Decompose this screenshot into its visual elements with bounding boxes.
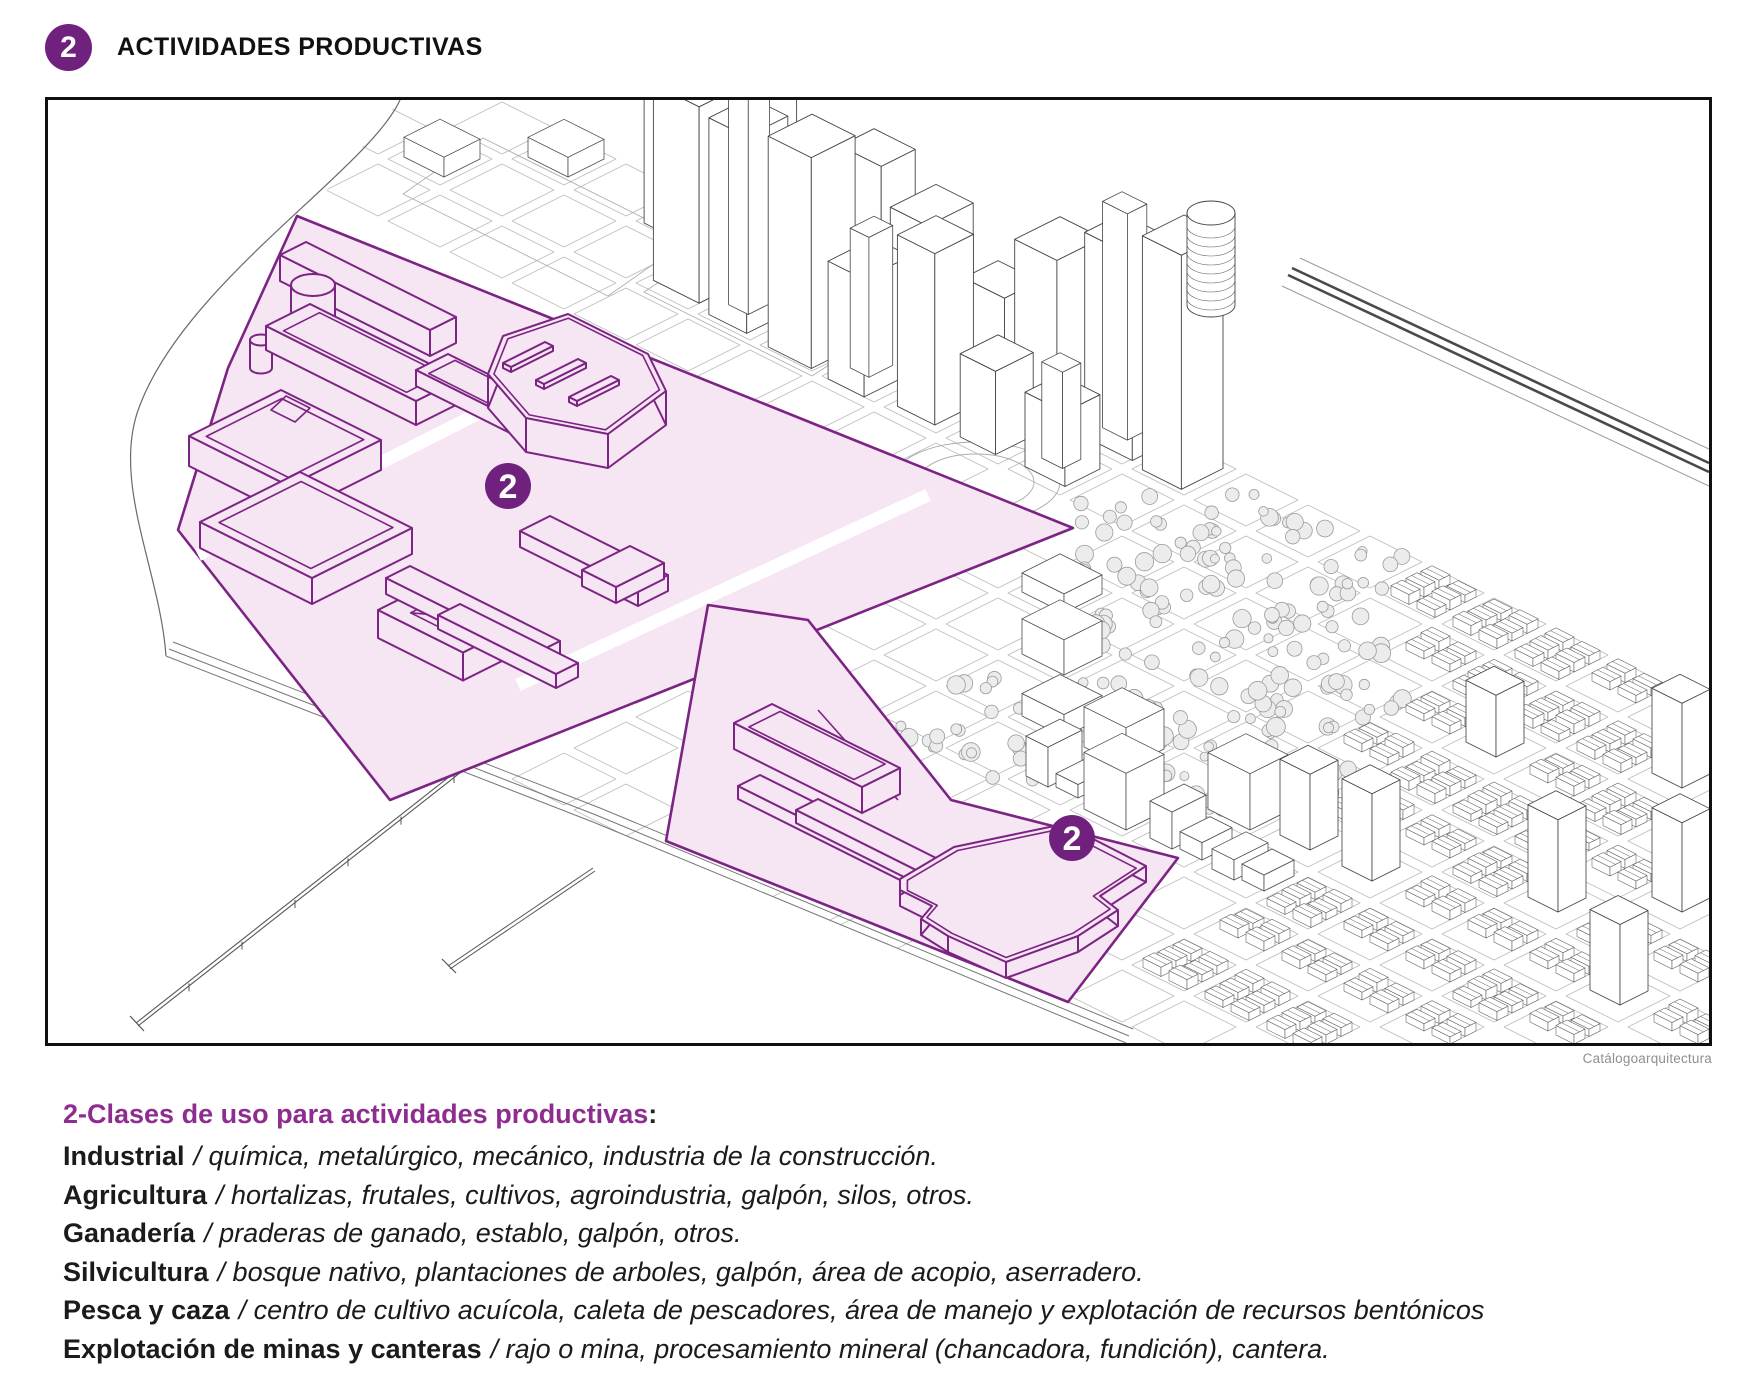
legend-term: Silvicultura	[63, 1257, 209, 1287]
legend-item-ganaderia: Ganadería/ praderas de ganado, establo, …	[63, 1214, 1703, 1253]
section-header: 2 ACTIVIDADES PRODUCTIVAS	[45, 24, 483, 71]
legend-desc: / bosque nativo, plantaciones de arboles…	[218, 1257, 1144, 1287]
legend-item-minas: Explotación de minas y canteras/ rajo o …	[63, 1330, 1703, 1369]
legend-term: Explotación de minas y canteras	[63, 1334, 482, 1364]
legend-desc: / química, metalúrgico, mecánico, indust…	[194, 1141, 938, 1171]
legend-desc: / praderas de ganado, establo, galpón, o…	[204, 1218, 741, 1248]
legend-desc: / hortalizas, frutales, cultivos, agroin…	[216, 1180, 974, 1210]
legend-item-silvicultura: Silvicultura/ bosque nativo, plantacione…	[63, 1253, 1703, 1292]
section-number: 2	[60, 31, 77, 65]
legend-heading-colon: :	[648, 1099, 657, 1129]
city-map-figure: 22	[45, 97, 1712, 1046]
isometric-city-drawing: 22	[48, 100, 1709, 1043]
legend-heading-text: 2-Clases de uso para actividades product…	[63, 1099, 648, 1129]
legend-term: Agricultura	[63, 1180, 207, 1210]
legend-item-pesca: Pesca y caza/ centro de cultivo acuícola…	[63, 1291, 1703, 1330]
legend-desc: / rajo o mina, procesamiento mineral (ch…	[491, 1334, 1330, 1364]
legend-item-industrial: Industrial/ química, metalúrgico, mecáni…	[63, 1137, 1703, 1176]
section-number-badge: 2	[45, 24, 92, 71]
map-credit: Catálogoarquitectura	[45, 1051, 1712, 1066]
legend-term: Pesca y caza	[63, 1295, 230, 1325]
legend-desc: / centro de cultivo acuícola, caleta de …	[239, 1295, 1485, 1325]
zone1-badge-number: 2	[499, 468, 518, 506]
page: 2 ACTIVIDADES PRODUCTIVAS 22 Catálogoarq…	[0, 0, 1754, 1385]
zone2-badge-number: 2	[1063, 820, 1082, 858]
legend-item-agricultura: Agricultura/ hortalizas, frutales, culti…	[63, 1176, 1703, 1215]
page-title: ACTIVIDADES PRODUCTIVAS	[117, 33, 483, 62]
legend-term: Ganadería	[63, 1218, 195, 1248]
legend-term: Industrial	[63, 1141, 185, 1171]
legend-heading: 2-Clases de uso para actividades product…	[63, 1099, 1703, 1130]
legend-block: 2-Clases de uso para actividades product…	[63, 1099, 1703, 1368]
